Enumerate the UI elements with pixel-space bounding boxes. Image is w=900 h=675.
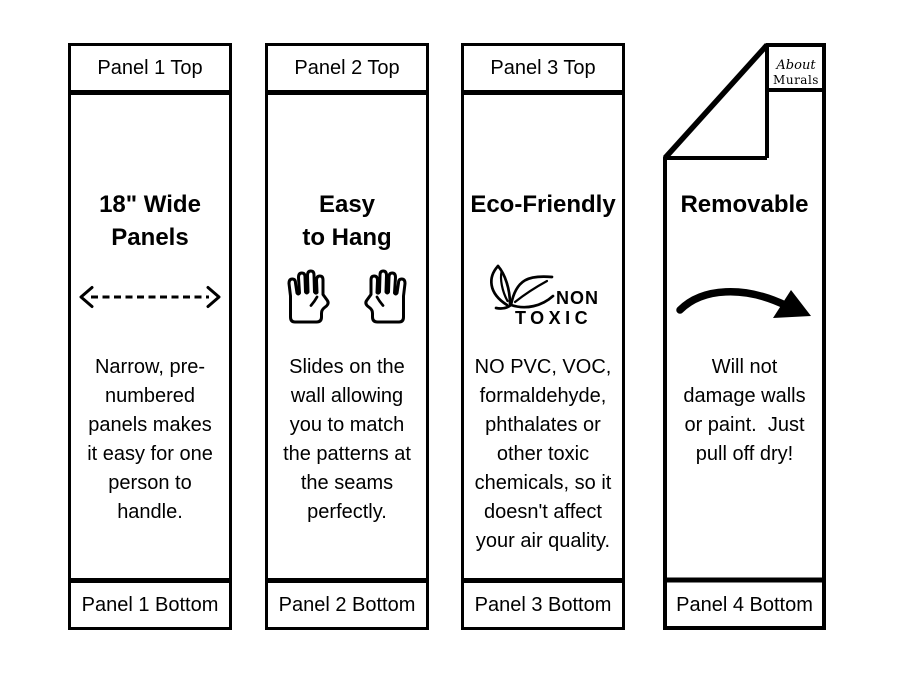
non-toxic-leaves-icon: NON TOXIC bbox=[464, 259, 622, 333]
panel-1-top-label: Panel 1 Top bbox=[71, 46, 229, 95]
panel-1-title: 18" Wide Panels bbox=[71, 188, 229, 254]
panel-1-bottom-label: Panel 1 Bottom bbox=[71, 578, 229, 627]
panel-2: Panel 2 Top Easy to Hang Slides on the w… bbox=[265, 43, 429, 630]
wallpaper-panels-infographic: Panel 1 Top 18" Wide Panels Narrow, pre-… bbox=[0, 0, 900, 675]
panel-4-icon-row bbox=[663, 280, 826, 332]
non-label: NON bbox=[556, 288, 599, 308]
curved-arrow-icon bbox=[672, 280, 817, 332]
panel-3-body: NO PVC, VOC, formaldehyde, phthalates or… bbox=[464, 353, 622, 556]
raised-hand-right-icon bbox=[362, 267, 407, 324]
panel-3: Panel 3 Top Eco-Friendly NON TOXIC NO PV… bbox=[461, 43, 625, 630]
panel-4-outline-with-folded-corner bbox=[663, 43, 826, 630]
panel-2-title: Easy to Hang bbox=[268, 188, 426, 254]
panel-3-bottom-label: Panel 3 Bottom bbox=[464, 578, 622, 627]
panel-2-body: Slides on the wall allowing you to match… bbox=[268, 353, 426, 527]
panel-1: Panel 1 Top 18" Wide Panels Narrow, pre-… bbox=[68, 43, 232, 630]
panel-3-top-label: Panel 3 Top bbox=[464, 46, 622, 95]
dashed-width-arrow-icon bbox=[76, 284, 224, 310]
panel-3-icon-row: NON TOXIC bbox=[464, 259, 622, 333]
panel-4-body: Will not damage walls or paint. Just pul… bbox=[663, 353, 826, 469]
panel-2-icon-row bbox=[268, 267, 426, 324]
panel-2-top-label: Panel 2 Top bbox=[268, 46, 426, 95]
logo-word-murals: Murals bbox=[773, 73, 819, 87]
panel-4-bottom-label: Panel 4 Bottom bbox=[663, 583, 826, 628]
panel-1-icon-row bbox=[71, 284, 229, 310]
panel-3-title: Eco-Friendly bbox=[464, 188, 622, 221]
raised-hand-left-icon bbox=[287, 267, 332, 324]
panel-4-title: Removable bbox=[663, 188, 826, 221]
aboutmurals-logo: About Murals bbox=[769, 55, 823, 91]
toxic-label: TOXIC bbox=[515, 308, 592, 328]
panel-4: About Murals Removable Will not damage w… bbox=[663, 43, 826, 630]
panel-2-bottom-label: Panel 2 Bottom bbox=[268, 578, 426, 627]
panel-1-body: Narrow, pre- numbered panels makes it ea… bbox=[71, 353, 229, 527]
logo-word-about: About bbox=[776, 59, 815, 73]
